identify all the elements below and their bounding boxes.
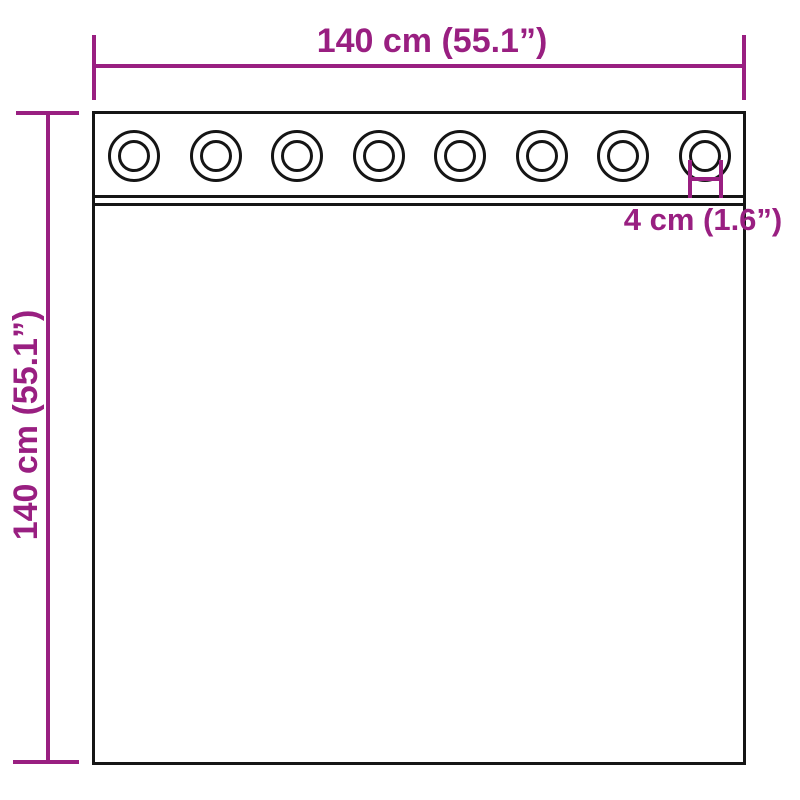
grommet-icon xyxy=(434,130,486,182)
grommet-inner-ring xyxy=(607,140,639,172)
grommet-icon xyxy=(271,130,323,182)
grommet-inner-ring xyxy=(118,140,150,172)
width-dimension-label: 140 cm (55.1”) xyxy=(106,22,758,60)
grommet-icon xyxy=(597,130,649,182)
grommet-icon xyxy=(516,130,568,182)
height-dimension-line xyxy=(46,113,50,763)
width-dimension-line xyxy=(93,64,745,68)
grommet-inner-ring xyxy=(689,140,721,172)
grommet-inner-ring xyxy=(526,140,558,172)
height-dimension-tick-top xyxy=(16,111,79,115)
grommet-icon xyxy=(679,130,731,182)
height-dimension-tick-bottom xyxy=(13,760,79,764)
grommet-inner-ring xyxy=(281,140,313,172)
header-seam-line-top xyxy=(92,195,746,198)
height-dimension-label: 140 cm (55.1”) xyxy=(4,275,48,575)
grommet-inner-ring xyxy=(363,140,395,172)
grommet-inner-ring xyxy=(444,140,476,172)
grommet-dimension-label: 4 cm (1.6”) xyxy=(613,203,793,237)
width-dimension-tick-left xyxy=(92,35,96,100)
grommet-dimension-line xyxy=(688,177,723,181)
grommet-icon xyxy=(353,130,405,182)
width-dimension-tick-right xyxy=(742,35,746,100)
grommet-icon xyxy=(190,130,242,182)
curtain-dimension-diagram: 140 cm (55.1”) 140 cm (55.1”) 4 cm (1.6”… xyxy=(0,0,800,800)
grommet-icon xyxy=(108,130,160,182)
grommet-inner-ring xyxy=(200,140,232,172)
